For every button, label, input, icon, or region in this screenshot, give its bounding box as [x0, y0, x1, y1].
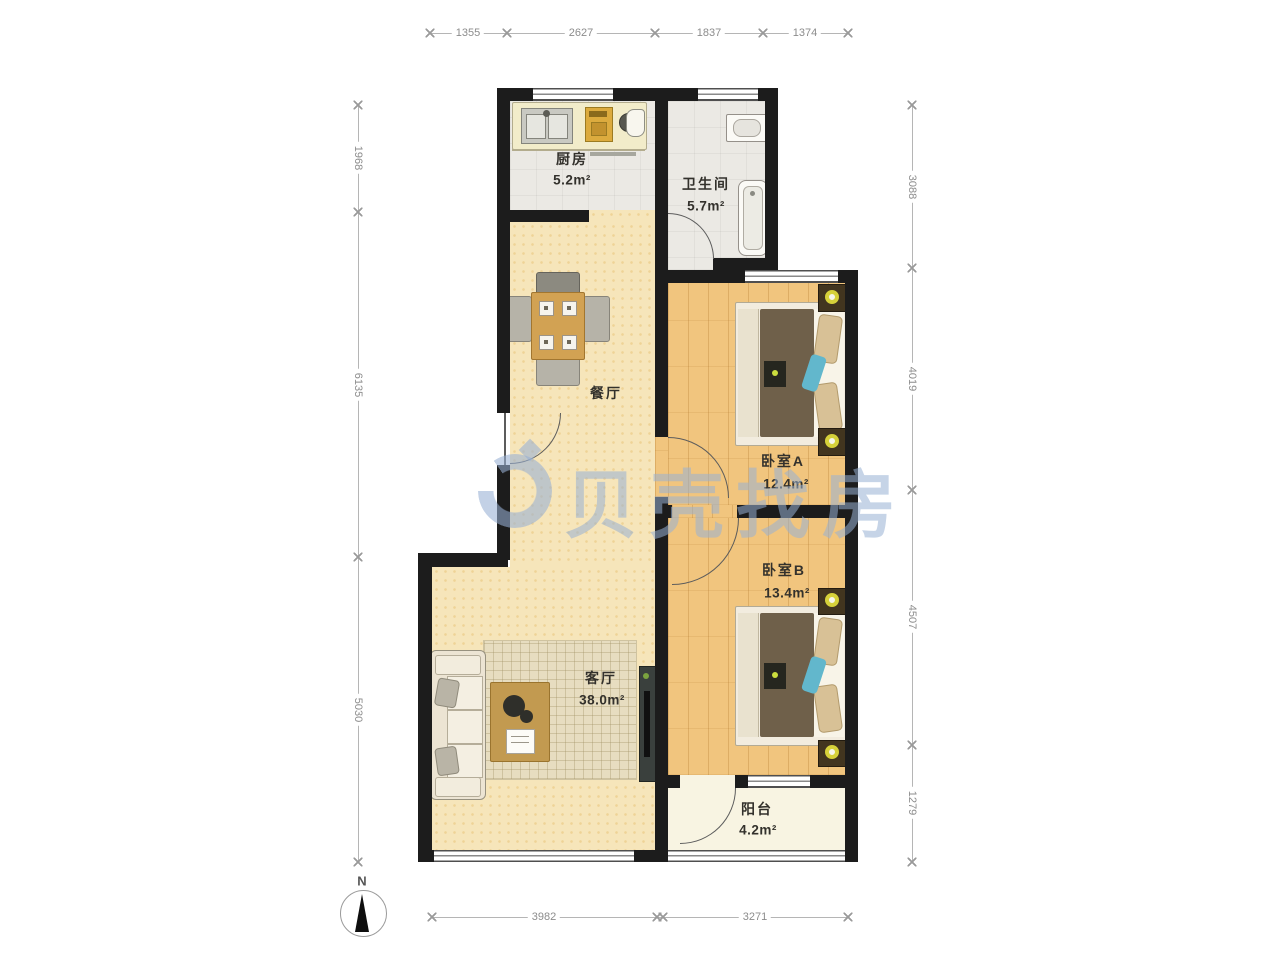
wall: [497, 210, 589, 222]
living-area: 38.0m²: [579, 693, 625, 708]
wall: [655, 518, 668, 775]
kitchen-window: [533, 88, 613, 101]
balcony-label: 阳台: [741, 799, 773, 819]
living-window: [434, 850, 634, 862]
dim-label: 3271: [739, 911, 771, 923]
balcony-area: 4.2m²: [739, 823, 777, 838]
wall: [655, 505, 672, 518]
dim-label: 4019: [906, 363, 918, 395]
stove-icon: [585, 107, 613, 142]
wall: [713, 258, 765, 270]
bedroomA-area: 12.4m²: [763, 477, 809, 492]
dim-label: 1837: [693, 27, 725, 39]
bathtub-icon: [738, 180, 768, 256]
bedroomA-nightstand-bottom: [818, 428, 848, 456]
dim-label: 3982: [528, 911, 560, 923]
wall: [655, 283, 668, 437]
wall: [737, 505, 845, 518]
floor-plan-canvas: 厨房 5.2m² 卫生间 5.7m² 餐厅 卧室A 12.4m² 卧室B 13.…: [0, 0, 1280, 958]
wall: [765, 101, 778, 283]
sofa-icon: [430, 650, 486, 800]
kitchen-area: 5.2m²: [553, 173, 591, 188]
bedroomA-window: [745, 270, 838, 283]
dining-chair-bottom: [536, 356, 580, 386]
bathroom-window: [698, 88, 758, 101]
wall: [655, 775, 680, 788]
bedroomA-door-opening: [655, 437, 668, 497]
entry-door-leaf: [504, 413, 506, 465]
coffee-table-icon: [490, 682, 550, 762]
bathroom-label: 卫生间: [682, 174, 730, 194]
dim-label: 2627: [565, 27, 597, 39]
kitchen-counter: [512, 102, 647, 150]
kettle-icon: [626, 109, 645, 137]
wall: [497, 101, 510, 413]
wall: [497, 465, 510, 560]
wall: [845, 270, 858, 862]
dim-label: 5030: [352, 694, 364, 726]
dim-label: 1355: [452, 27, 484, 39]
dim-label: 6135: [352, 369, 364, 401]
bedroomA-nightstand-top: [818, 284, 848, 312]
dining-label: 餐厅: [590, 383, 622, 403]
counter-tag: [590, 152, 636, 156]
balcony-door-opening: [680, 775, 735, 788]
dim-label: 1968: [352, 142, 364, 174]
bedroomA-label: 卧室A: [761, 451, 805, 471]
bedroomB-door-opening: [672, 505, 737, 518]
kitchen-label: 厨房: [556, 149, 588, 169]
bedroomB-nightstand-top: [818, 588, 848, 615]
kitchen-sink-icon: [521, 108, 573, 144]
wall: [418, 567, 432, 862]
wall: [655, 101, 668, 270]
north-arrow-icon: [355, 894, 369, 932]
bedroomB-area: 13.4m²: [764, 586, 810, 601]
dining-table-icon: [531, 292, 585, 360]
dim-label: 1279: [906, 787, 918, 819]
washbasin-icon: [726, 114, 767, 142]
bathroom-door-opening: [668, 258, 713, 270]
bedroomA-bed-icon: [735, 302, 849, 446]
wall: [418, 553, 508, 567]
dim-label: 1374: [789, 27, 821, 39]
bedroomB-nightstand-bottom: [818, 740, 848, 767]
balcony-railing: [668, 850, 845, 862]
dining-chair-right: [583, 296, 610, 342]
dim-label: 4507: [906, 601, 918, 633]
living-label: 客厅: [585, 668, 617, 688]
wall: [655, 788, 668, 862]
bedroomB-bed-icon: [735, 606, 849, 746]
compass-north-label: N: [353, 874, 370, 889]
bedroomB-label: 卧室B: [762, 560, 806, 580]
kitchen-opening: [589, 210, 655, 222]
dim-label: 3088: [906, 171, 918, 203]
bedroomB-balcony-window: [748, 775, 810, 788]
bathroom-area: 5.7m²: [687, 199, 725, 214]
